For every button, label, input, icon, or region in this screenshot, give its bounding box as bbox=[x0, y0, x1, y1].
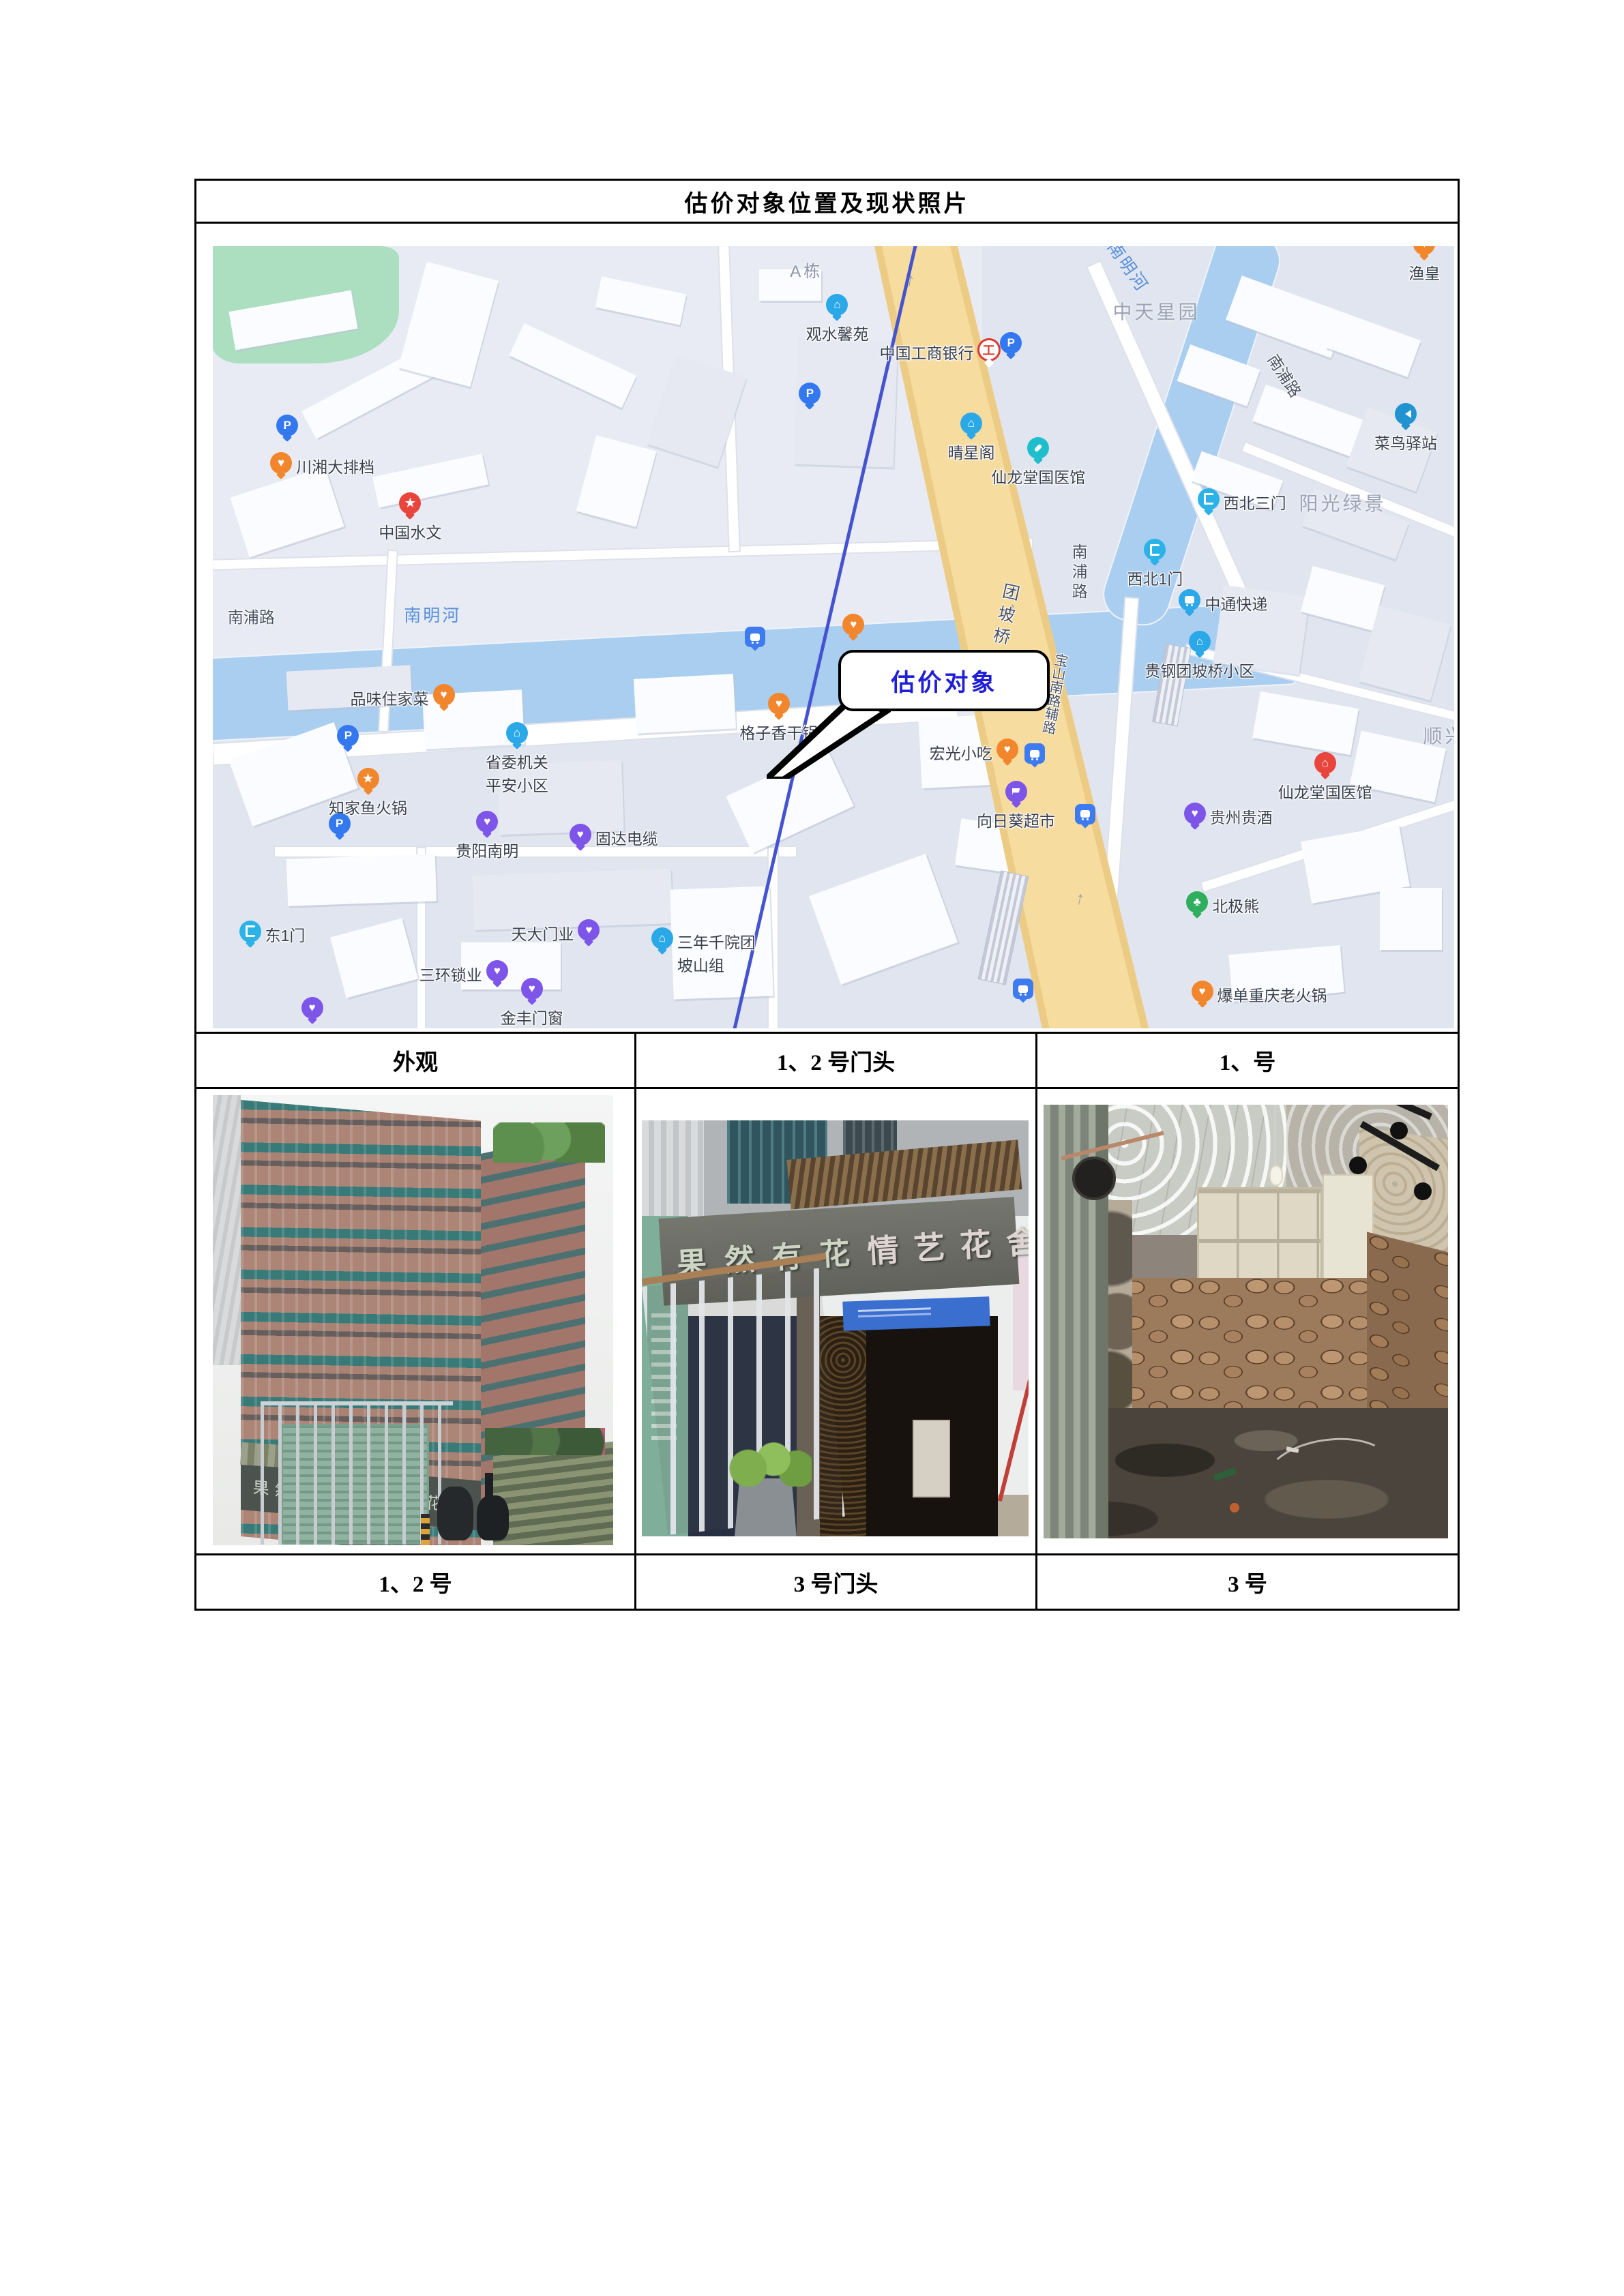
bus-stop-icon bbox=[1075, 804, 1095, 824]
location-map: ↑ ↑ ↑ 南明河 南明河 南浦路 南浦路 南浦路 团坡桥 宝山南路辅路 中天星… bbox=[213, 246, 1454, 1028]
caption-row-2: 1、2 号 3 号门头 3 号 bbox=[196, 1555, 1458, 1609]
stone-stairs bbox=[493, 1442, 613, 1545]
motorbike bbox=[437, 1487, 473, 1540]
bus-stop-icon bbox=[1024, 743, 1045, 764]
restaurant-pin-icon: ♥ bbox=[1192, 981, 1213, 1002]
caption-row-1: 外观 1、2 号门头 1、号 bbox=[196, 1034, 1458, 1089]
building-pin-icon: ⌂ bbox=[506, 722, 528, 744]
building-pin-icon: ⌂ bbox=[826, 294, 848, 316]
building-pin-icon: ⌂ bbox=[651, 927, 673, 949]
star-pin-icon: ★ bbox=[399, 492, 421, 514]
parking-pin-icon: P bbox=[276, 415, 298, 436]
appraisal-photo-table: 估价对象位置及现状照片 bbox=[194, 179, 1460, 1611]
road-label-nanpu: 南浦路 bbox=[228, 604, 275, 627]
river-label: 南明河 bbox=[404, 602, 461, 627]
area-label: 阳光绿景 bbox=[1299, 489, 1387, 516]
photo-row: 果然有花 情艺花舍 bbox=[196, 1089, 1458, 1555]
gate-pin-icon bbox=[239, 921, 261, 942]
broom bbox=[998, 1380, 1029, 1502]
sign-text-right: 情艺花舍 bbox=[866, 1216, 1029, 1272]
area-label: 中天星园 bbox=[1113, 297, 1200, 325]
cainiao-station-pin-icon bbox=[1395, 403, 1417, 425]
restaurant-pin-icon: ♥ bbox=[433, 684, 455, 706]
area-label: A栋 bbox=[790, 258, 823, 282]
shop-pin-icon: ♥ bbox=[301, 997, 323, 1019]
hospital-pin-icon: ⌂ bbox=[1314, 752, 1336, 774]
planter bbox=[735, 1478, 797, 1536]
shop-pin-icon: ♥ bbox=[521, 978, 543, 1000]
parking-pin-icon: P bbox=[329, 813, 351, 835]
caption-doorhead-3: 3 号门头 bbox=[634, 1555, 1035, 1609]
road-label-nanpu-vert: 南浦路 bbox=[1067, 543, 1090, 603]
area-label: 顺兴 bbox=[1423, 721, 1455, 749]
road bbox=[213, 539, 1032, 569]
gas-station-icon bbox=[1013, 979, 1033, 999]
stone-wallpaper-wall bbox=[1121, 1278, 1376, 1421]
icbc-bank-icon: 工 bbox=[977, 338, 1001, 361]
map-cell: ↑ ↑ ↑ 南明河 南明河 南浦路 南浦路 南浦路 团坡桥 宝山南路辅路 中天星… bbox=[196, 224, 1458, 1034]
caption-no-1: 1、号 bbox=[1035, 1034, 1458, 1087]
wall-shelving bbox=[1197, 1187, 1323, 1291]
appraisal-object-callout: 估价对象 bbox=[838, 650, 1050, 712]
caption-exterior: 外观 bbox=[196, 1034, 634, 1087]
parking-pin-icon: P bbox=[799, 383, 821, 404]
road bbox=[275, 847, 796, 856]
delivery-pin-icon bbox=[1179, 589, 1200, 611]
restaurant-pin-icon: ♥ bbox=[270, 452, 292, 474]
restaurant-pin-icon: ♥ bbox=[996, 739, 1018, 760]
supermarket-pin-icon bbox=[1005, 781, 1027, 803]
document-page: 估价对象位置及现状照片 bbox=[0, 0, 1624, 2296]
callout-label: 估价对象 bbox=[891, 664, 997, 698]
gate-pin-icon bbox=[1198, 488, 1220, 510]
shop-pin-icon: ♥ bbox=[1184, 803, 1206, 824]
caption-no-1-2: 1、2 号 bbox=[196, 1555, 634, 1609]
photo-cell-exterior: 果然有花 情艺花舍 bbox=[196, 1089, 634, 1553]
restaurant-pin-icon: ★ bbox=[357, 768, 379, 790]
bus-stop-icon bbox=[745, 627, 765, 647]
table-title-row: 估价对象位置及现状照片 bbox=[196, 181, 1458, 224]
shop-pin-icon: ♥ bbox=[570, 824, 591, 846]
page-title: 估价对象位置及现状照片 bbox=[685, 185, 970, 218]
caption-no-3: 3 号 bbox=[1035, 1555, 1458, 1609]
photo-building-exterior: 果然有花 情艺花舍 bbox=[213, 1095, 613, 1545]
hanging-bulb bbox=[1269, 1165, 1283, 1186]
motorbike bbox=[477, 1495, 509, 1540]
shop-pin-icon: ♥ bbox=[578, 919, 600, 941]
photo-shop-interior bbox=[1044, 1105, 1448, 1538]
photo-cell-doorhead: 果然有花 情艺花舍 bbox=[634, 1089, 1035, 1553]
caption-doorhead-1-2: 1、2 号门头 bbox=[634, 1034, 1035, 1087]
photo-storefront: 果然有花 情艺花舍 bbox=[642, 1120, 1029, 1536]
shop-pin-icon: ♥ bbox=[486, 960, 508, 982]
photo-cell-interior bbox=[1035, 1089, 1458, 1553]
